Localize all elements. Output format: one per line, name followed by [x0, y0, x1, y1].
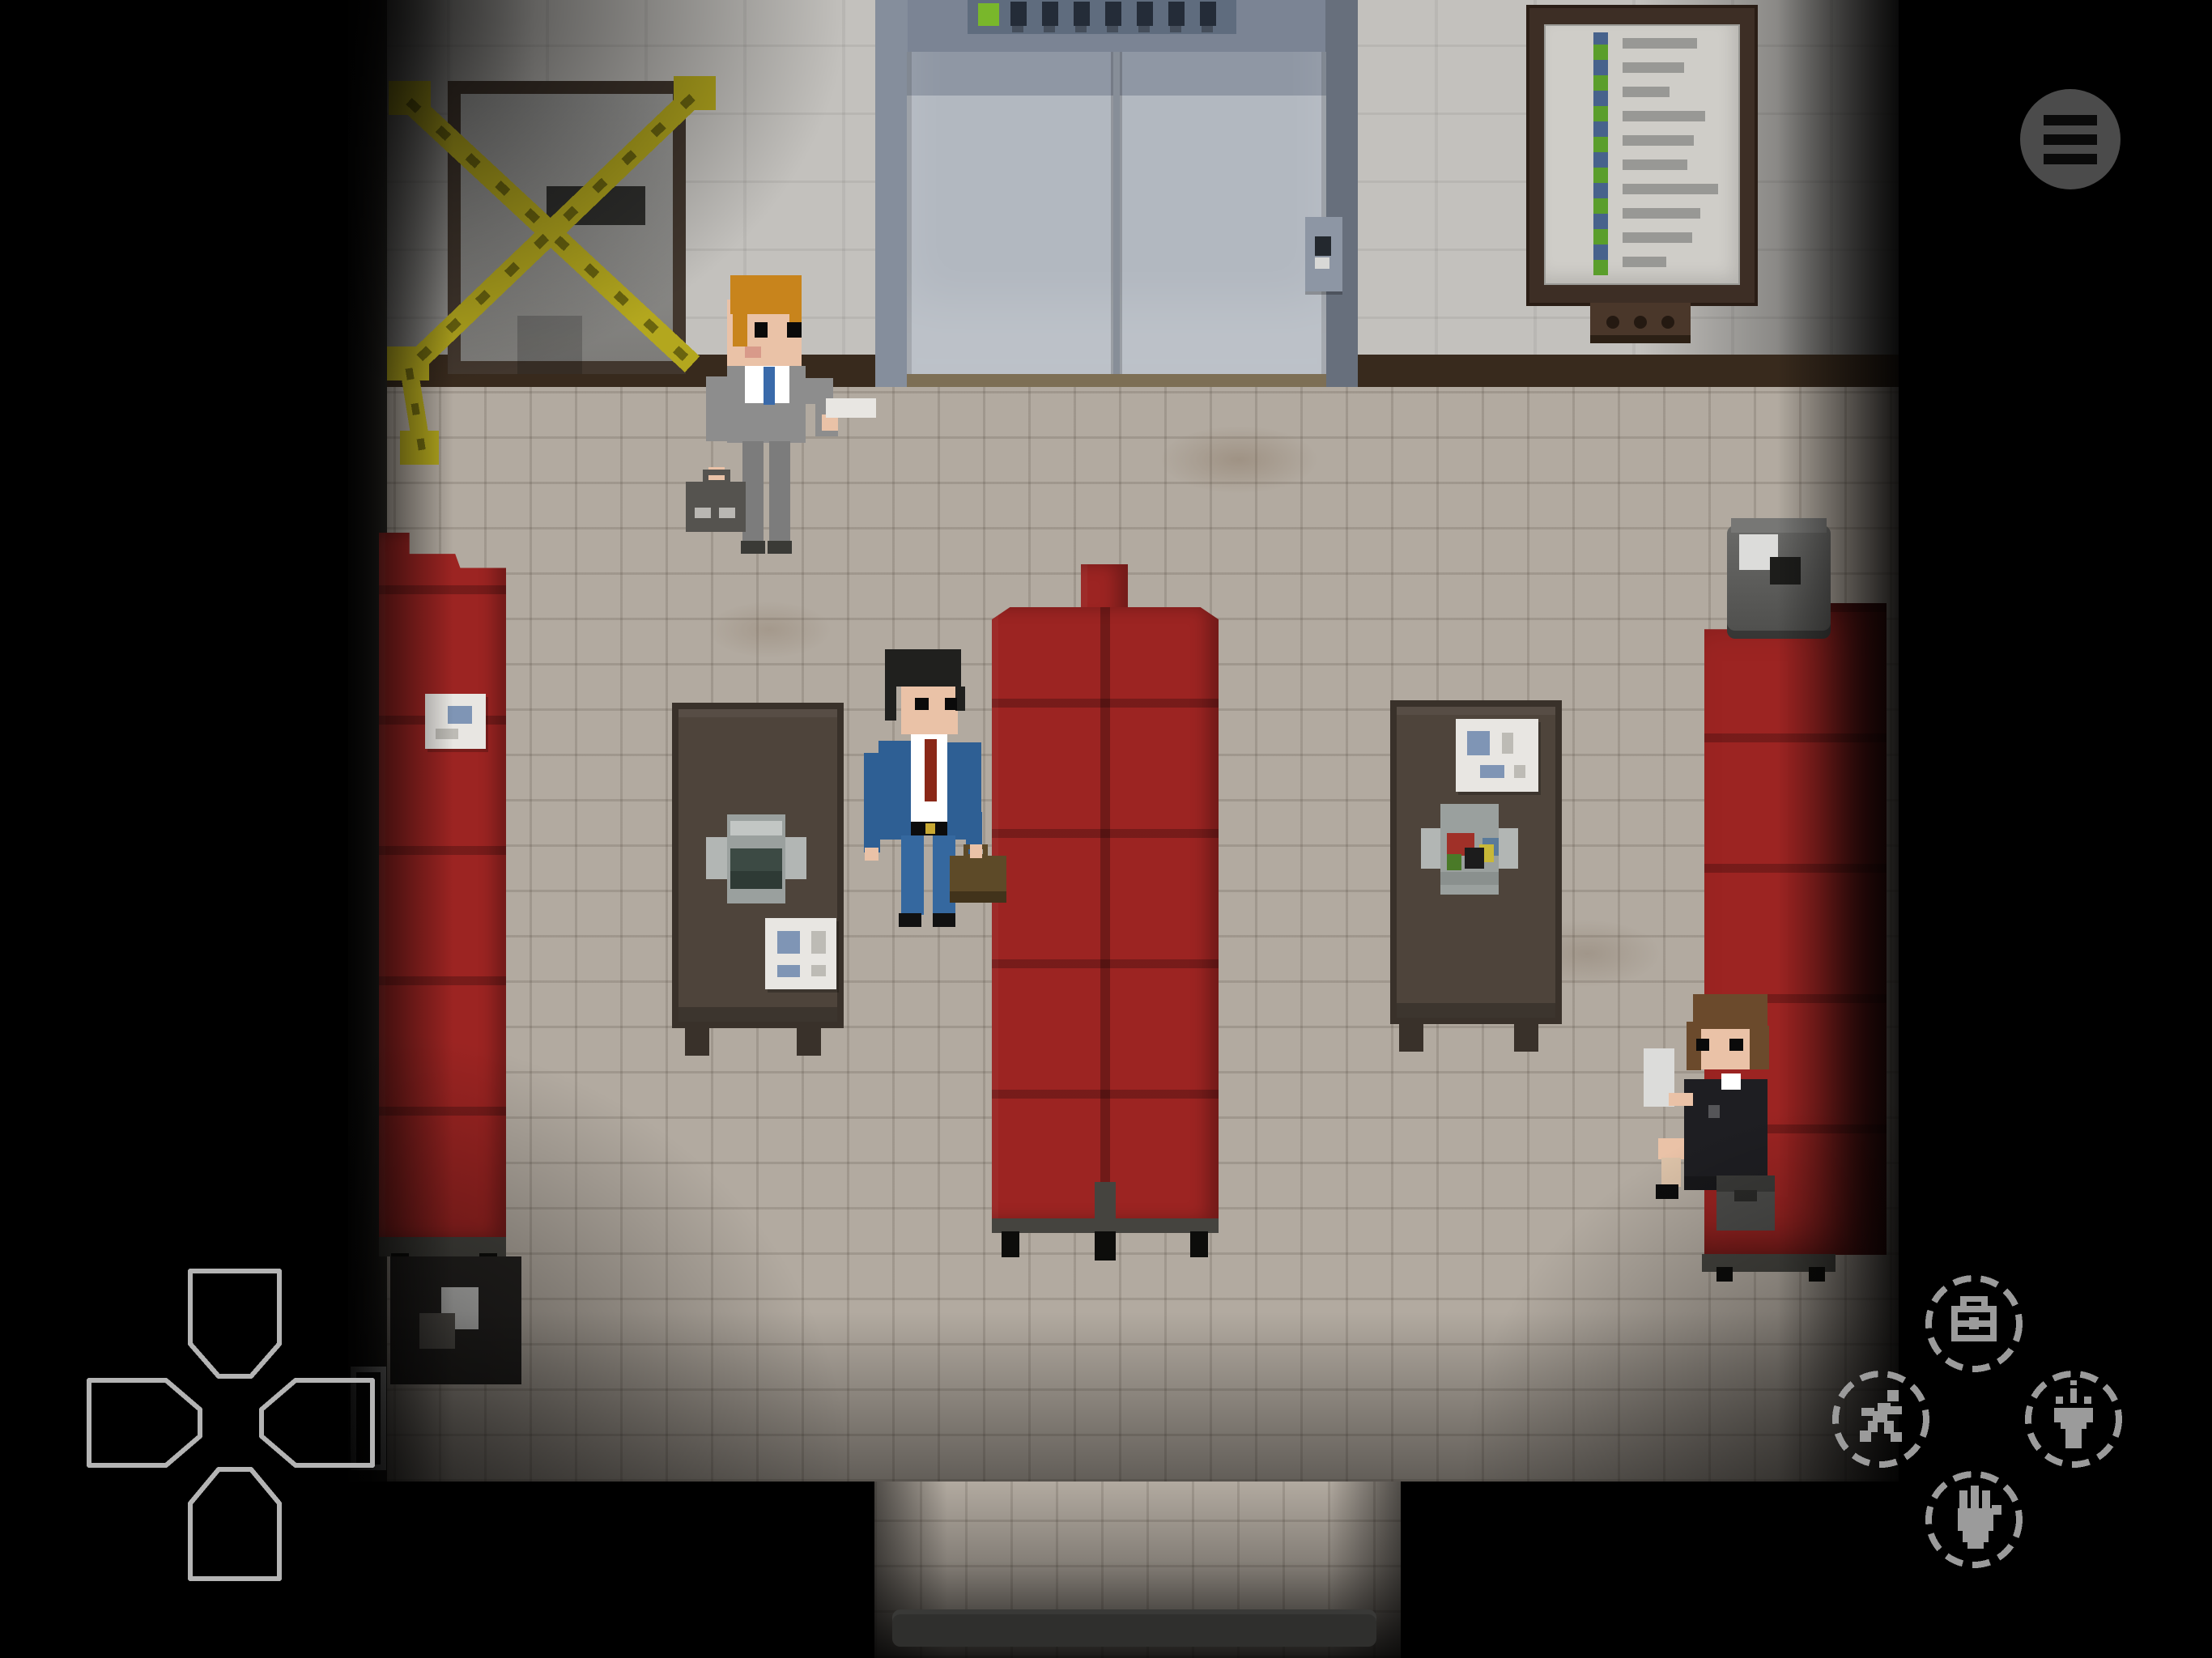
bench-center-foot	[1095, 1231, 1116, 1261]
elevator-call-panel[interactable]	[1305, 217, 1342, 291]
hamburger-menu-icon	[2044, 115, 2097, 125]
corridor-mat[interactable]	[892, 1609, 1376, 1647]
shoe	[899, 913, 921, 927]
bench-center-foot	[1002, 1231, 1019, 1257]
game-viewport: move up move down move left move right	[0, 0, 2212, 1658]
eye	[1696, 1039, 1709, 1051]
note-blue-bar	[777, 965, 800, 977]
note-blue-square	[777, 931, 800, 954]
briefcase-latch	[719, 508, 735, 518]
bench-left	[379, 533, 506, 1237]
notice-board-listing	[1623, 24, 1728, 275]
safe-right-dial[interactable]	[1421, 804, 1518, 895]
dial-bottom-band	[1440, 872, 1499, 885]
arm	[864, 753, 880, 852]
eye	[1729, 1039, 1743, 1051]
trash-can-opening	[1770, 557, 1801, 585]
note-gray-bar	[1502, 733, 1513, 754]
tie	[925, 739, 937, 801]
listing-line	[1623, 38, 1697, 49]
notice-board-paper	[1544, 24, 1740, 285]
elevator[interactable]	[875, 0, 1358, 387]
safe-left-dial[interactable]	[706, 814, 806, 903]
tie	[764, 367, 775, 405]
hair-lock	[1750, 1026, 1769, 1069]
hand-icon	[1958, 1486, 2001, 1549]
hand	[865, 848, 878, 861]
arm	[706, 376, 729, 441]
note-gray-bar	[811, 931, 826, 954]
safe-right-leg	[1399, 1022, 1423, 1052]
note-blue-square	[448, 706, 472, 724]
dpad-down-button[interactable]: move down	[190, 1469, 279, 1579]
safe-left-leg	[797, 1027, 821, 1056]
elevator-sill	[907, 374, 1326, 387]
shoe	[1656, 1184, 1678, 1199]
bench-left-note[interactable]	[425, 694, 486, 749]
shoe	[933, 913, 955, 927]
listing-line	[1623, 232, 1692, 243]
elevator-indicator-panel	[968, 0, 1236, 34]
note-gray-bar	[1514, 765, 1525, 778]
bag-flap	[1716, 1175, 1775, 1192]
elevator-call-button-lower[interactable]	[1315, 257, 1329, 269]
character-dark-haired-man[interactable]	[858, 648, 1012, 931]
bracket-rivet	[1661, 316, 1674, 329]
mouth	[745, 346, 761, 358]
dial-core-shadow	[730, 871, 782, 889]
notice-board-strip	[1593, 32, 1608, 275]
elevator-doors[interactable]	[907, 52, 1326, 374]
bench-center-foot	[1190, 1231, 1208, 1257]
menu-button[interactable]	[2020, 89, 2121, 189]
briefcase	[686, 482, 746, 532]
elevator-indicator-slots	[1010, 2, 1224, 26]
elevator-door-seam	[1113, 52, 1120, 374]
suit-button	[1708, 1105, 1720, 1118]
notice-board[interactable]	[1526, 5, 1758, 306]
eye	[915, 698, 929, 710]
elevator-call-button[interactable]	[1315, 236, 1331, 256]
note-gray-bar	[811, 965, 826, 976]
character-blonde-man[interactable]	[684, 274, 887, 557]
leg	[769, 441, 790, 542]
briefcase-latch	[695, 508, 711, 518]
listing-line	[1623, 184, 1718, 194]
shoe	[741, 541, 765, 554]
hair-lock	[885, 687, 896, 721]
hands	[1669, 1093, 1693, 1106]
suit-body	[1684, 1079, 1767, 1176]
briefcase	[950, 856, 1006, 903]
bench-right-foot	[1716, 1267, 1733, 1282]
run-button[interactable]	[1831, 1369, 1931, 1469]
listing-line	[1623, 87, 1670, 97]
note-blue-bar	[1480, 765, 1504, 778]
hair	[730, 275, 802, 314]
elevator-indicator-light	[978, 3, 999, 26]
hair	[1693, 994, 1767, 1029]
trash-can-bottom-left[interactable]	[390, 1256, 521, 1384]
bag-on-bench[interactable]	[1716, 1175, 1775, 1231]
bench-center-divider	[1100, 607, 1110, 1220]
safe-left-leg	[685, 1027, 709, 1056]
listing-line	[1623, 159, 1687, 170]
listing-line	[1623, 111, 1705, 121]
character-sitting-woman[interactable]	[1640, 992, 1785, 1202]
flashlight-icon	[2054, 1380, 2093, 1448]
dpad: move up move down move left move right	[77, 1259, 385, 1583]
safe-right-leg	[1514, 1022, 1538, 1052]
leg	[901, 835, 924, 915]
dial-color-black	[1465, 848, 1484, 869]
hamburger-menu-icon-bar	[2044, 134, 2097, 145]
hamburger-menu-icon-bar	[2044, 154, 2097, 164]
collar	[1721, 1073, 1741, 1090]
trash-can-top-right[interactable]	[1727, 514, 1832, 640]
trash-can-rim	[1731, 518, 1827, 533]
eye	[755, 322, 768, 338]
safe-left-note[interactable]	[765, 918, 836, 989]
note-gray-bar	[436, 729, 458, 739]
safe-right-note[interactable]	[1456, 719, 1538, 792]
bench-right-foot	[1809, 1267, 1825, 1282]
dpad-right-button[interactable]: move right	[262, 1380, 372, 1465]
hair-lock	[733, 314, 747, 346]
running-person-icon	[1860, 1390, 1902, 1442]
bench-center	[992, 607, 1219, 1220]
notice-board-bracket	[1590, 303, 1691, 343]
interact-button[interactable]	[1924, 1469, 2024, 1570]
bracket-rivet	[1606, 316, 1619, 329]
trash-shadow-block	[419, 1313, 455, 1349]
listing-line	[1623, 135, 1694, 146]
note-blue-square	[1467, 731, 1490, 755]
dpad-left-button[interactable]: move left	[89, 1380, 200, 1465]
eye	[945, 698, 957, 710]
bag-handle-hole	[1734, 1190, 1757, 1201]
listing-line	[1623, 208, 1700, 219]
held-paper	[826, 398, 876, 418]
bench-center-post	[1095, 1182, 1116, 1231]
dial-highlight	[730, 821, 782, 835]
hand	[970, 844, 982, 858]
inventory-button[interactable]	[1924, 1273, 2024, 1374]
jacket-panel	[878, 741, 911, 840]
hair	[885, 649, 961, 687]
dpad-up-button[interactable]: move up	[190, 1271, 279, 1376]
eye	[787, 322, 802, 338]
listing-line	[1623, 62, 1684, 73]
belt-buckle	[925, 823, 935, 834]
bracket-rivet	[1634, 316, 1647, 329]
listing-line	[1623, 257, 1666, 267]
flashlight-button[interactable]	[2023, 1369, 2124, 1469]
dial-color-green	[1447, 854, 1461, 870]
shin	[1661, 1158, 1681, 1187]
briefcase-icon	[1951, 1296, 1997, 1341]
elevator-indicator-slots-small	[1012, 26, 1223, 32]
shoe	[768, 541, 792, 554]
